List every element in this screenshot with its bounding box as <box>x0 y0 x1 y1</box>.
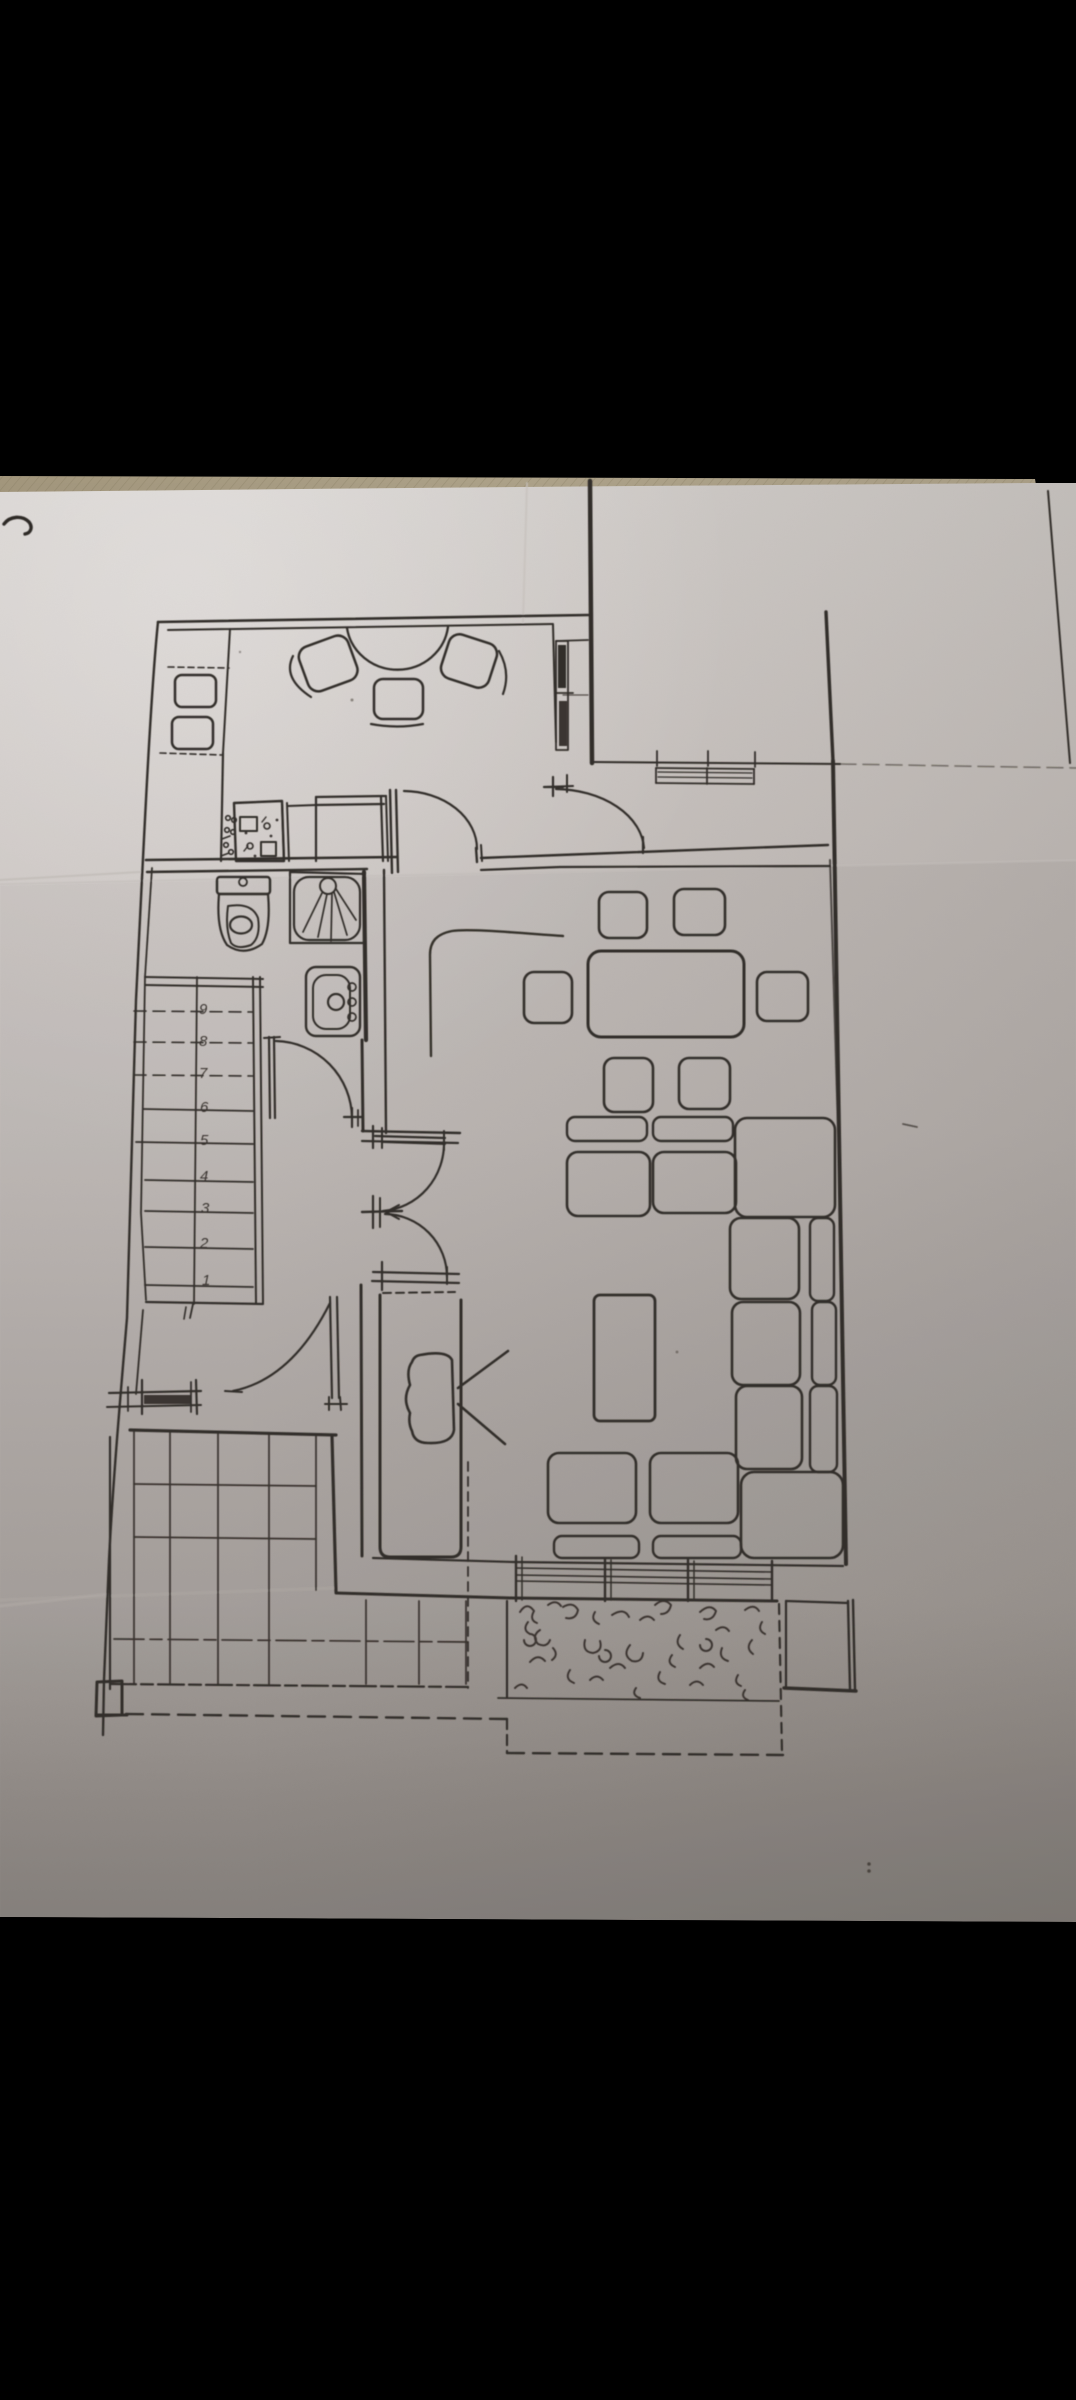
svg-text:2: 2 <box>199 1235 209 1252</box>
svg-text:7: 7 <box>199 1065 208 1082</box>
svg-text:8: 8 <box>199 1033 208 1050</box>
svg-text:4: 4 <box>200 1168 208 1185</box>
svg-text:5: 5 <box>200 1132 209 1149</box>
svg-text:6: 6 <box>200 1099 209 1116</box>
svg-text:3: 3 <box>201 1200 210 1217</box>
svg-text:9: 9 <box>199 1001 208 1018</box>
svg-text:1: 1 <box>202 1272 210 1289</box>
